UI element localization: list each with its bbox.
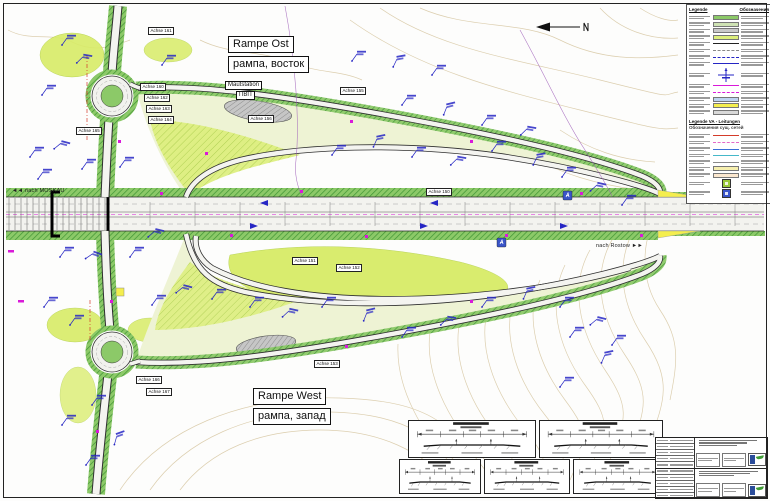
drawing-sheet: Rampe Ost рампа, восток Rampe West рампа… (0, 0, 770, 501)
sheet-border (3, 3, 767, 498)
